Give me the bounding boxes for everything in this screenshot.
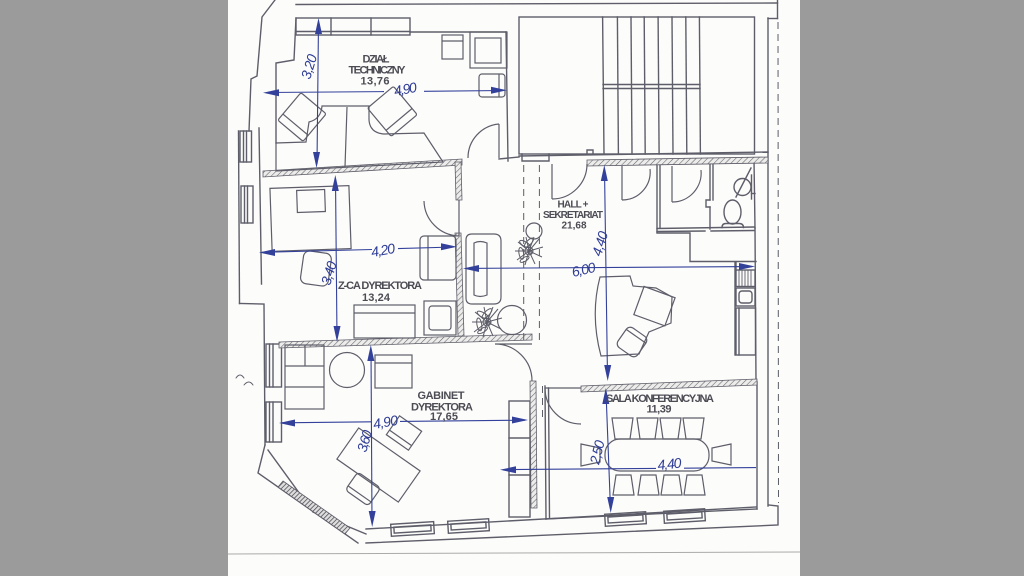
svg-text:13,24: 13,24 — [362, 292, 391, 304]
svg-text:HALL +: HALL + — [558, 200, 589, 211]
svg-text:17,65: 17,65 — [430, 411, 458, 423]
svg-text:SEKRETARIAT: SEKRETARIAT — [543, 210, 603, 221]
svg-text:11,39: 11,39 — [647, 404, 672, 416]
svg-text:21,68: 21,68 — [562, 221, 587, 232]
svg-text:13,76: 13,76 — [361, 76, 390, 88]
svg-text:GABINET: GABINET — [418, 390, 465, 402]
svg-text:Z-CA DYREKTORA: Z-CA DYREKTORA — [338, 280, 422, 292]
svg-text:4,40: 4,40 — [657, 455, 683, 473]
